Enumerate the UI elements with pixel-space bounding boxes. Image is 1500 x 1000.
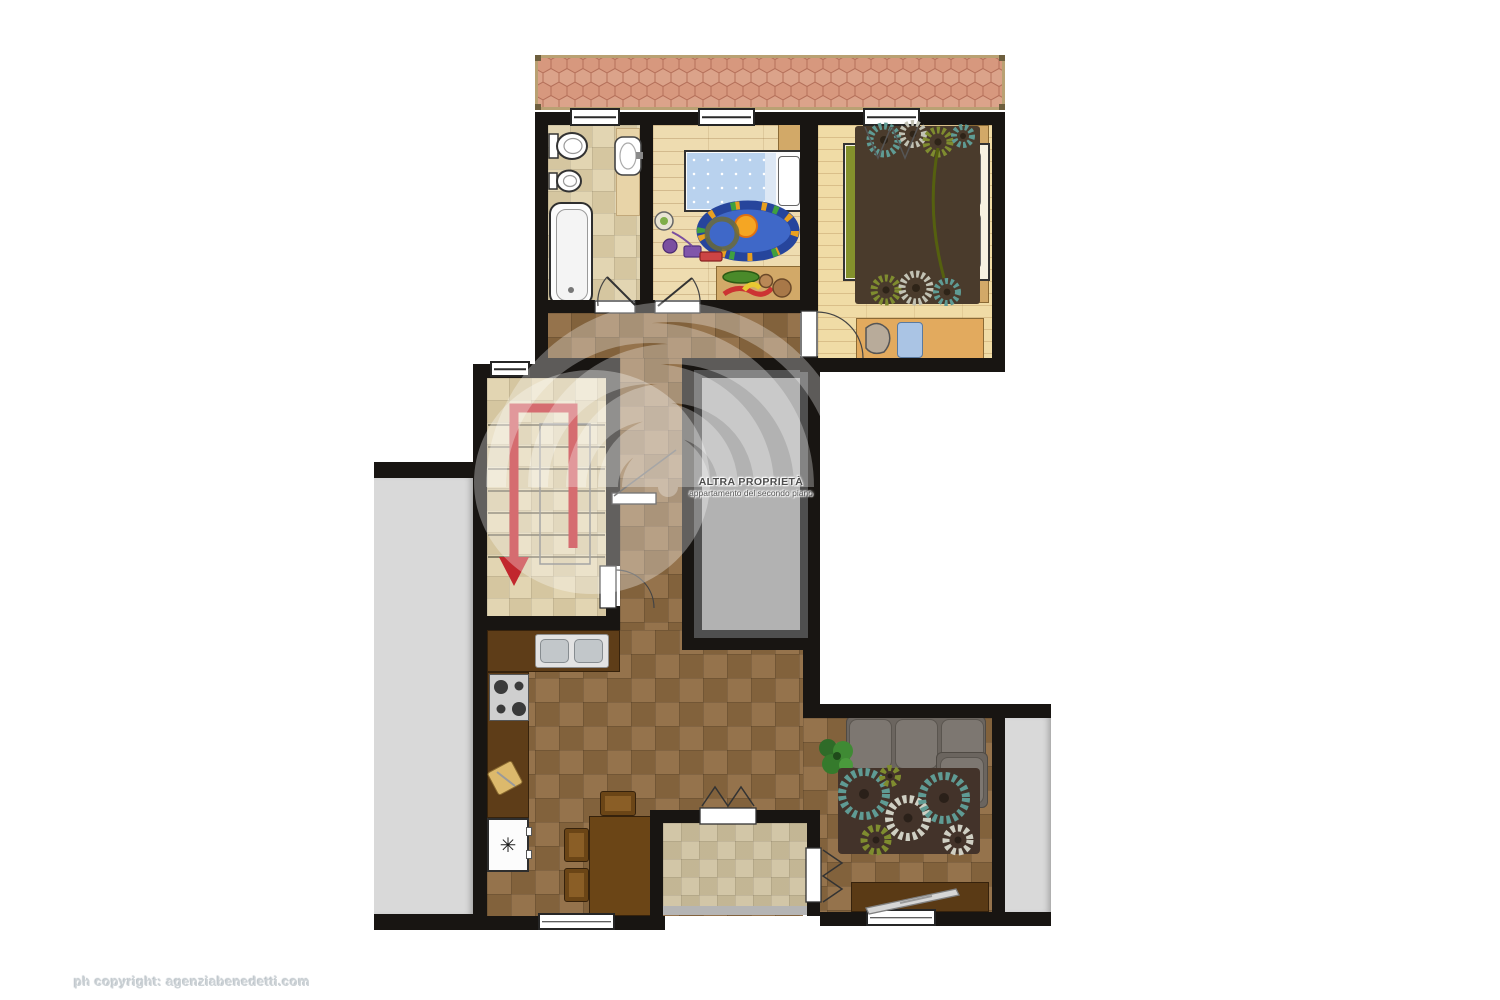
other-property-area [702,378,800,630]
balcony-floor [663,823,807,906]
master-bed [843,143,990,281]
other-property-label-line1: ALTRA PROPRIETÀ [684,476,818,488]
sofa-cushion-1 [849,719,892,769]
dining-table [589,816,657,916]
chair-seat [569,873,584,897]
bathroom-counter [616,128,640,216]
sink-basin-left [540,639,569,663]
fridge: ✳ [487,818,529,872]
other-property-label: ALTRA PROPRIETÀ appartamento del secondo… [684,476,818,498]
other-property-label-line2: appartamento del secondo piano [684,488,818,498]
terrace-wall [1005,704,1051,718]
hallway-floor [547,313,800,358]
dining-chair-left-2 [564,868,589,902]
wall [818,358,1005,372]
terrace-wall [374,462,473,478]
balcony-wall [650,810,700,823]
wall [700,300,802,313]
tv-cabinet [851,882,989,912]
kitchen-window [538,913,615,930]
master-bed-duvet [846,146,952,278]
roof [535,55,1005,110]
chair-seat [569,833,584,857]
corridor-floor [620,358,682,650]
wall [473,364,487,630]
floor-plan: ✳ [0,0,1500,1000]
dining-chair-top [600,791,636,816]
fridge-symbol: ✳ [489,820,527,870]
kids-bed [684,150,804,212]
wall [547,300,595,313]
terrace-wall [374,914,487,930]
kids-bed-sheet [765,153,776,209]
copyright-text: ph copyright: agenziabenedetti.com [74,974,310,989]
fridge-hinge-top [526,827,532,836]
kitchen-sink [535,634,609,668]
staircase-floor [487,378,606,616]
wall [473,630,487,930]
chair-seat [605,796,631,811]
kids-dresser [716,266,804,302]
wall [635,300,655,313]
fridge-hinge-bottom [526,850,532,859]
master-pillow-2 [951,213,981,269]
staircase-window [490,361,530,377]
wall [818,704,1005,718]
bathroom-window [570,108,620,126]
master-bedroom-window [863,108,920,126]
desk-chair [897,322,923,358]
kids-cabinet [778,123,802,153]
wall [640,112,653,313]
balcony-wall [807,902,820,916]
wall [473,616,620,630]
living-room-window [866,909,936,926]
terrace-wall [1005,912,1051,926]
wall [992,704,1005,926]
stove [489,674,529,721]
kids-room-window [698,108,755,126]
kids-pillow [778,156,800,206]
bathtub [549,202,593,306]
sink-basin-right [574,639,603,663]
wall [606,364,620,566]
right-terrace [1005,718,1051,912]
master-pillow-1 [951,151,981,207]
bathtub-basin [556,209,588,301]
wall [800,112,818,311]
wall [992,112,1005,372]
balcony-parapet [663,906,807,915]
wall [535,112,548,372]
sofa-cushion-2 [895,719,938,769]
balcony-wall [807,810,820,848]
left-terrace [374,478,473,914]
sofa-chaise-cushion [940,757,984,804]
dining-chair-left-1 [564,828,589,862]
kids-bed-duvet [687,153,767,209]
roof-tiles [535,55,1005,110]
balcony-wall [650,810,663,916]
wall [800,356,818,372]
